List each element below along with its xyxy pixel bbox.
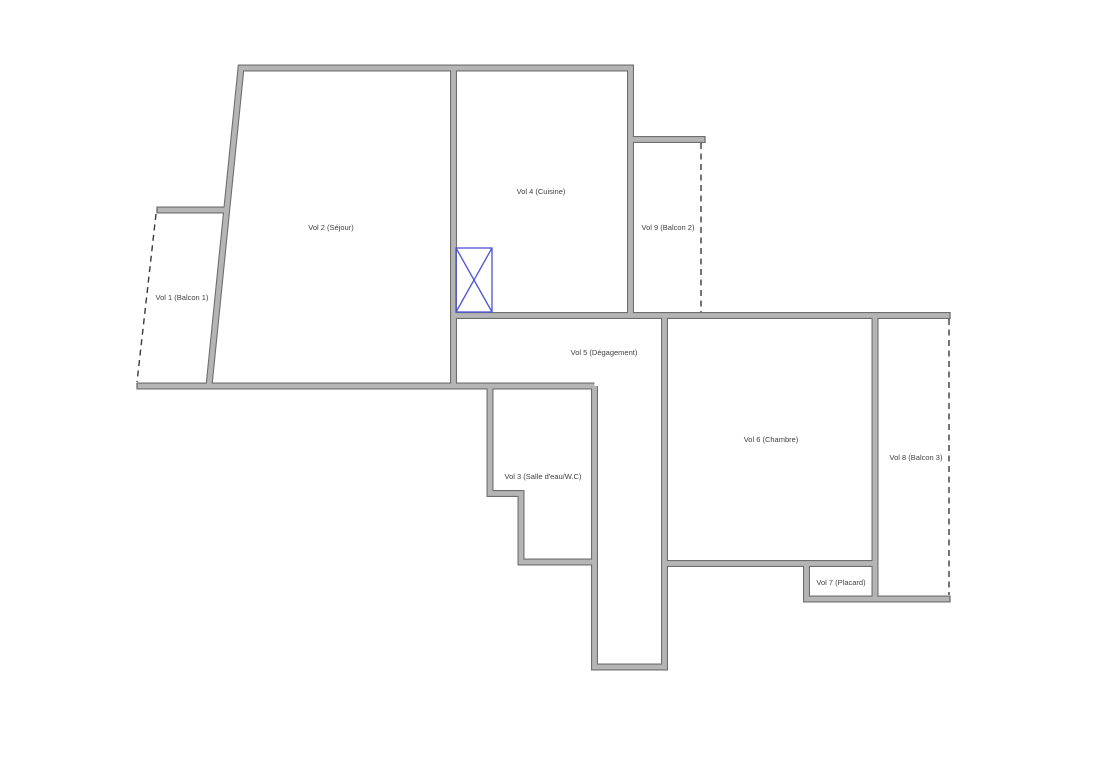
wall-end-caps (137, 136, 950, 602)
room-label-vol-7-placard: Vol 7 (Placard) (816, 578, 866, 587)
balcony-dashed-edges (137, 143, 949, 595)
room-label-vol-9-balcon-2: Vol 9 (Balcon 2) (642, 223, 695, 232)
room-label-vol-2-sejour: Vol 2 (Séjour) (308, 223, 354, 232)
room-label-vol-6-chambre: Vol 6 (Chambre) (744, 435, 799, 444)
room-label-vol-5-degagement: Vol 5 (Dégagement) (571, 348, 638, 357)
room-label-vol-3-salle-eau-wc: Vol 3 (Salle d'eau/W.C) (505, 472, 582, 481)
room-label-vol-1-balcon-1: Vol 1 (Balcon 1) (156, 293, 209, 302)
shaft-symbol (456, 248, 492, 312)
balcony-1-dashed-edge (137, 214, 156, 382)
room-label-vol-4-cuisine: Vol 4 (Cuisine) (517, 187, 566, 196)
room-label-vol-8-balcon-3: Vol 8 (Balcon 3) (890, 453, 943, 462)
floor-plan-canvas: Vol 1 (Balcon 1) Vol 2 (Séjour) Vol 3 (S… (0, 0, 1102, 757)
